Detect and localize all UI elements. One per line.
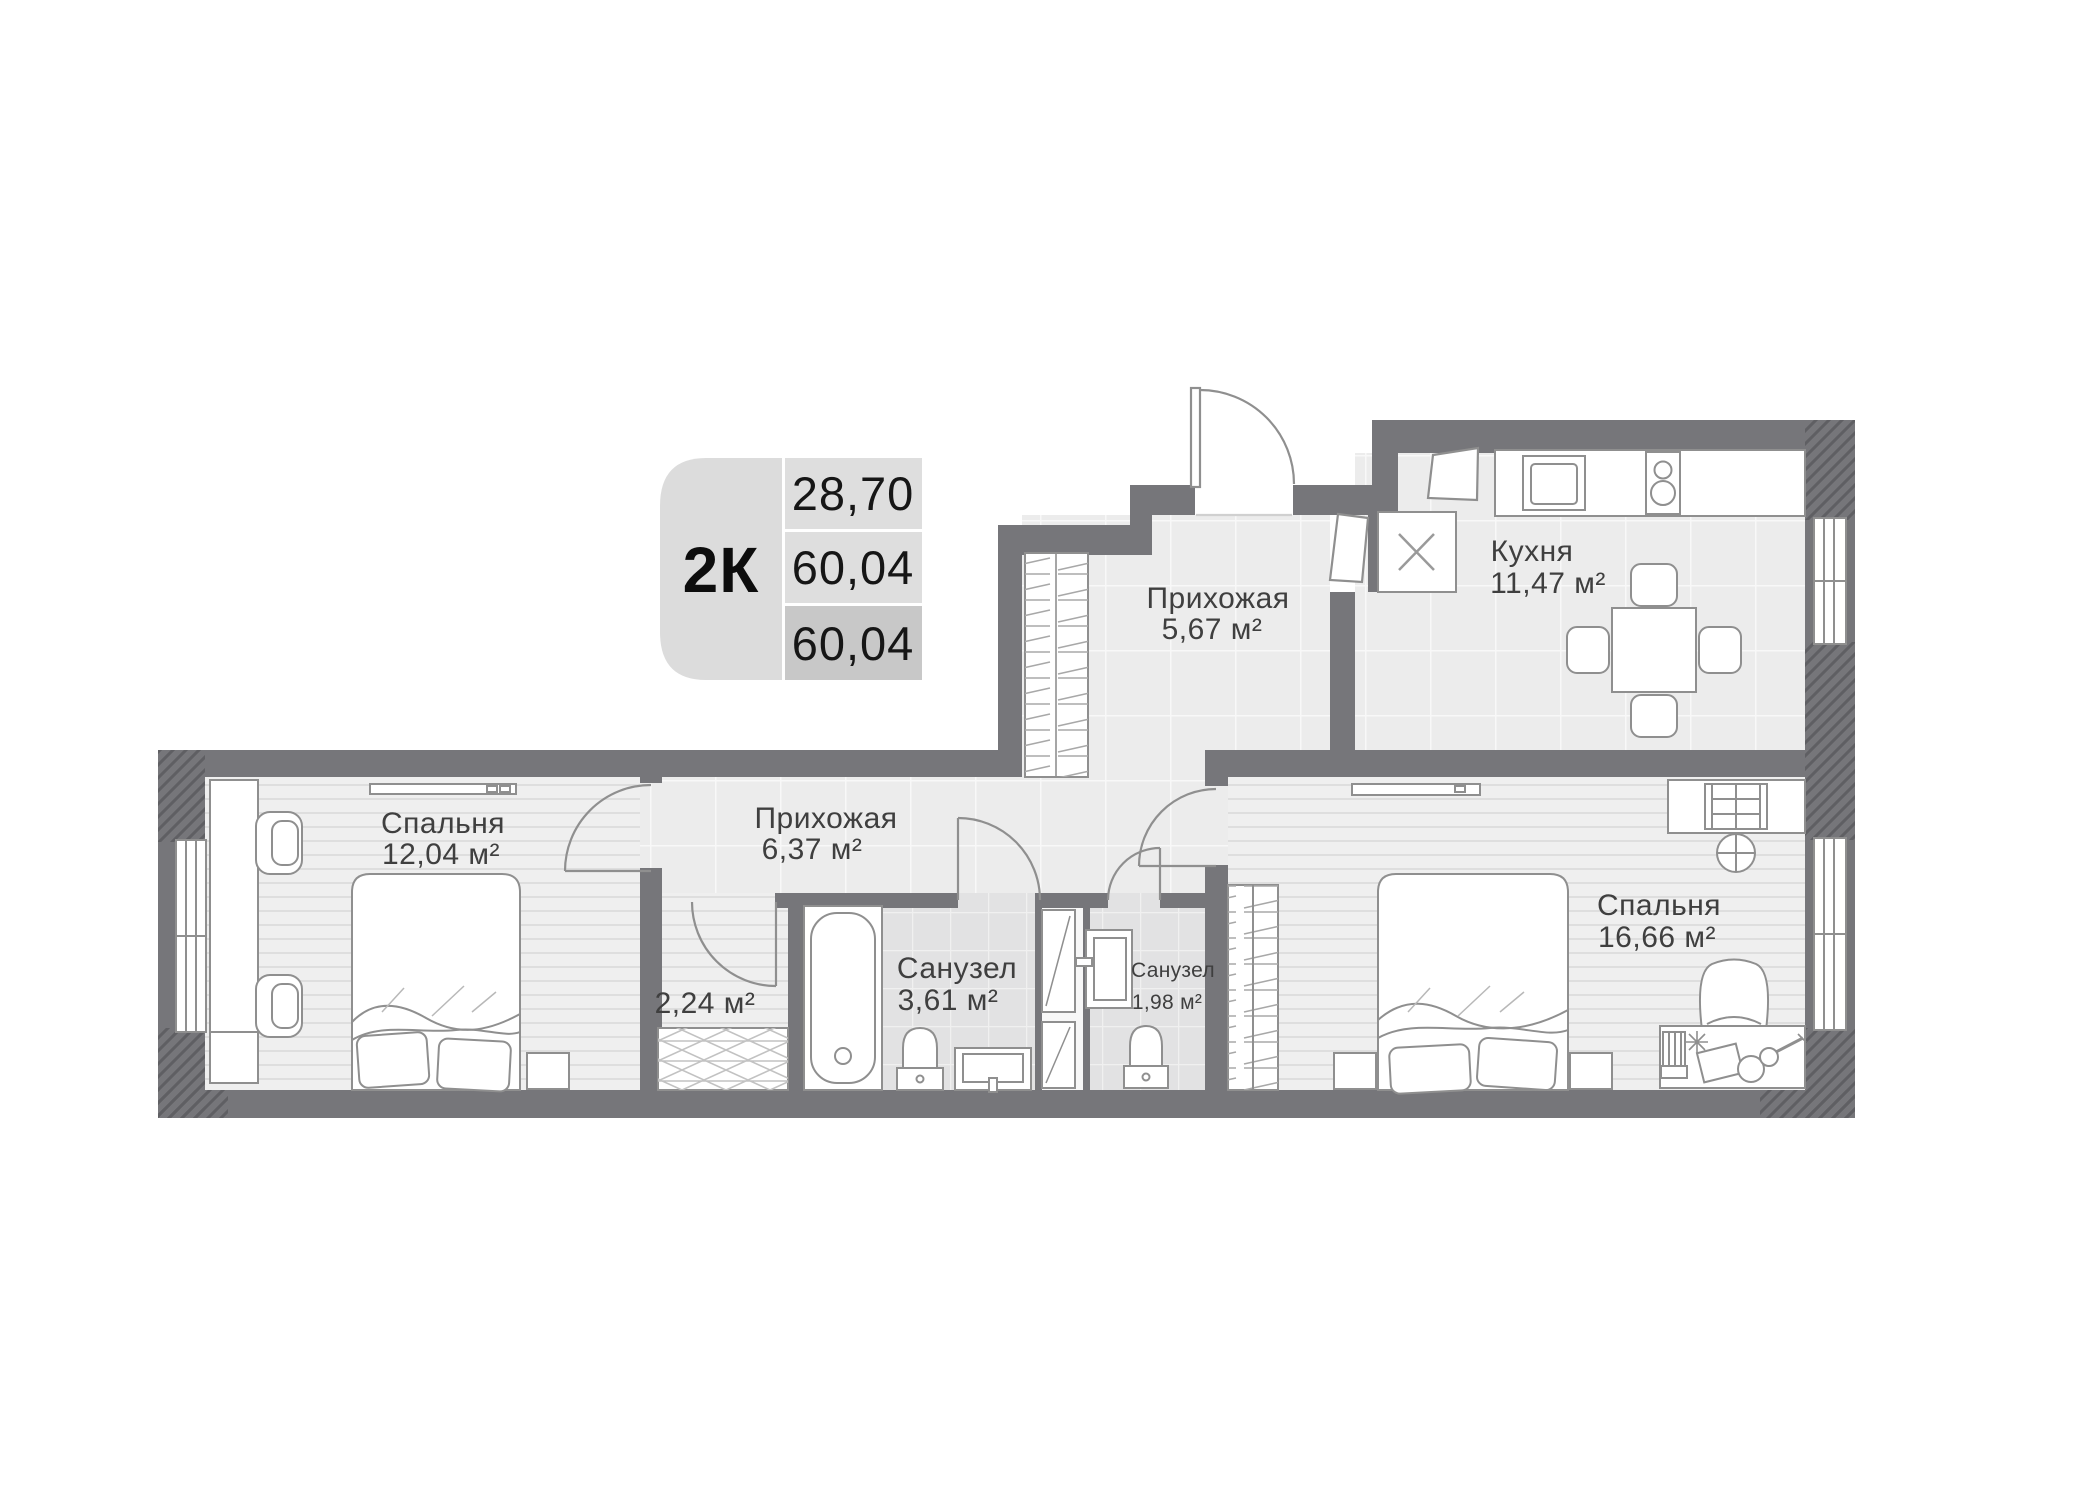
hall-wardrobe-icon [1025, 553, 1088, 777]
wall-storage-bath [788, 893, 803, 1090]
hatch-bottom-left [158, 1090, 228, 1118]
bath-main-area: 3,61 м² [898, 984, 999, 1017]
wall-corridor-seg3 [1042, 893, 1108, 908]
hatch-left-top [158, 750, 205, 842]
bed-icon [352, 874, 520, 1092]
linen-closet-icon [1042, 910, 1075, 1088]
kitchen-area: 11,47 м² [1490, 567, 1606, 600]
nightstand-icon [527, 1053, 569, 1089]
wall-bottom [158, 1090, 1855, 1118]
hatch-right-mid [1805, 642, 1855, 840]
badge-value-2: 60,04 [792, 541, 915, 594]
bedroom1-area: 12,04 м² [382, 838, 500, 871]
bed-icon [1378, 874, 1568, 1094]
floor-plan-svg: Спальня 12,04 м² Прихожая 6,37 м² Прихож… [0, 0, 2100, 1485]
shaft-door-leaf [1428, 448, 1478, 500]
pillow-icon [1389, 1044, 1471, 1094]
bath-small-label: Санузел [1131, 959, 1215, 982]
wall-entry-step [1130, 485, 1152, 555]
desk-icon [1660, 1026, 1806, 1088]
window-bedroom1 [176, 840, 206, 1032]
bath-main-label: Санузел [897, 952, 1017, 985]
corridor-area: 6,37 м² [762, 833, 863, 866]
wall-hall-top [998, 525, 1152, 555]
badge-value-3: 60,04 [792, 617, 915, 670]
toilet-icon [1124, 1026, 1168, 1088]
entry-door-leaf [1191, 388, 1200, 487]
nightstand-icon [1570, 1053, 1612, 1089]
bookcase-icon [1668, 780, 1805, 833]
corridor-label: Прихожая [754, 802, 897, 835]
window-kitchen [1814, 518, 1846, 644]
sink-icon [955, 1048, 1031, 1092]
chair-icon [1631, 564, 1677, 606]
entry-door-arc [1200, 390, 1294, 484]
wall-bedroom1-door-stub [640, 777, 662, 783]
plant-icon [1686, 1031, 1708, 1053]
chair-icon [256, 975, 302, 1037]
kitchen-label: Кухня [1491, 535, 1574, 568]
badge-type-label: 2К [683, 534, 760, 606]
nightstand-icon [1334, 1053, 1376, 1089]
wall-bedroom2-top [1205, 750, 1805, 777]
wall-entry-right [1293, 485, 1373, 515]
bedroom2-area: 16,66 м² [1598, 921, 1716, 954]
corridor-floor-pattern [640, 777, 1228, 908]
bath-small-area: 1,98 м² [1132, 991, 1202, 1014]
wardrobe-icon [210, 780, 258, 1083]
hatch-right-top [1805, 420, 1855, 520]
dining-table-icon [1612, 608, 1696, 692]
pillow-icon [1476, 1037, 1557, 1090]
chair-icon [1631, 695, 1677, 737]
wall-hall-left [998, 527, 1022, 777]
toilet-icon [897, 1028, 943, 1090]
office-chair-icon [1700, 960, 1768, 1037]
wall-bedroom2-door-stub [1205, 777, 1228, 786]
wall-closet-left [1035, 893, 1042, 1090]
wardrobe-icon [1228, 885, 1278, 1090]
storage-shelf-icon [658, 1028, 788, 1090]
hatch-bottom-right [1760, 1090, 1855, 1118]
wall-kitchen-top [1390, 420, 1830, 453]
wall-corridor-seg1 [640, 893, 655, 908]
pillow-icon [437, 1038, 512, 1092]
storage-area: 2,24 м² [655, 987, 756, 1020]
bedroom2-label: Спальня [1597, 889, 1721, 922]
pillow-icon [356, 1032, 429, 1089]
ruler-icon [1661, 1066, 1687, 1078]
window-bedroom2 [1814, 838, 1846, 1030]
chair-icon [1699, 627, 1741, 673]
apartment-badge: 2К 28,70 60,04 60,04 [660, 458, 922, 680]
entry-door [1191, 388, 1294, 515]
bedroom1-label: Спальня [381, 807, 505, 840]
badge-value-1: 28,70 [792, 467, 915, 520]
hall-area: 5,67 м² [1162, 613, 1263, 646]
chair-icon [256, 812, 302, 874]
floorplan-page: Спальня 12,04 м² Прихожая 6,37 м² Прихож… [0, 0, 2100, 1485]
tv-console-icon [370, 784, 516, 794]
wall-top-left [158, 750, 1022, 777]
hall-label: Прихожая [1146, 582, 1289, 615]
kitchen-door-leaf [1330, 514, 1368, 582]
bathtub-icon [804, 906, 882, 1090]
kitchen-sink-icon [1523, 456, 1585, 510]
cooktop-icon [1646, 452, 1680, 514]
tv-console-icon [1352, 784, 1480, 795]
wall-hall-kitchen [1330, 592, 1355, 753]
chair-icon [1567, 627, 1609, 673]
ventilation-shaft-icon [1378, 512, 1456, 592]
round-table-icon [1717, 834, 1755, 872]
